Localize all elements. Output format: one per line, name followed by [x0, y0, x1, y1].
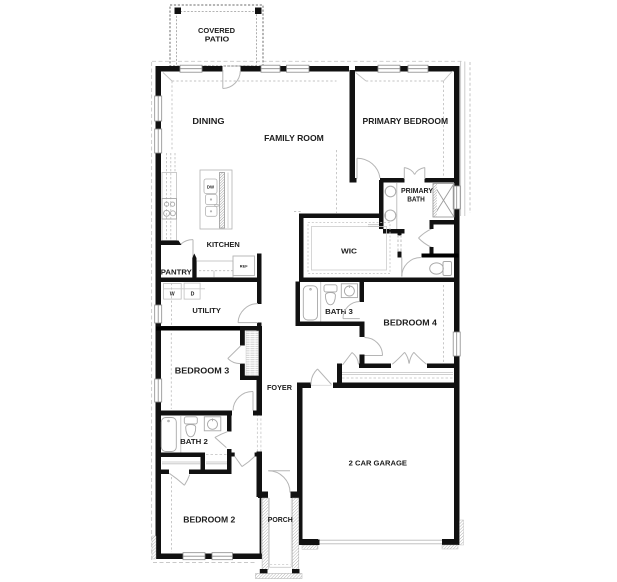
svg-text:FAMILY ROOM: FAMILY ROOM: [264, 133, 324, 143]
svg-text:BATH 2: BATH 2: [180, 437, 208, 446]
svg-text:KITCHEN: KITCHEN: [207, 240, 240, 249]
svg-text:D: D: [191, 292, 195, 298]
svg-text:PORCH: PORCH: [268, 515, 293, 524]
svg-text:FOYER: FOYER: [267, 383, 293, 392]
svg-text:2 CAR GARAGE: 2 CAR GARAGE: [349, 458, 407, 467]
svg-text:WIC: WIC: [341, 247, 358, 256]
svg-text:UTILITY: UTILITY: [192, 306, 221, 315]
svg-text:PANTRY: PANTRY: [161, 267, 192, 276]
svg-text:DW: DW: [207, 185, 215, 190]
svg-text:BEDROOM 3: BEDROOM 3: [175, 366, 230, 376]
svg-text:PATIO: PATIO: [205, 34, 230, 43]
svg-text:PRIMARY BEDROOM: PRIMARY BEDROOM: [363, 116, 449, 126]
svg-text:REF: REF: [240, 265, 248, 269]
svg-text:W: W: [170, 292, 175, 298]
svg-text:BEDROOM 4: BEDROOM 4: [383, 318, 437, 328]
svg-text:BATH: BATH: [407, 195, 425, 204]
svg-text:BATH 3: BATH 3: [325, 307, 353, 316]
svg-text:BEDROOM 2: BEDROOM 2: [183, 514, 235, 524]
svg-text:DINING: DINING: [192, 116, 224, 126]
